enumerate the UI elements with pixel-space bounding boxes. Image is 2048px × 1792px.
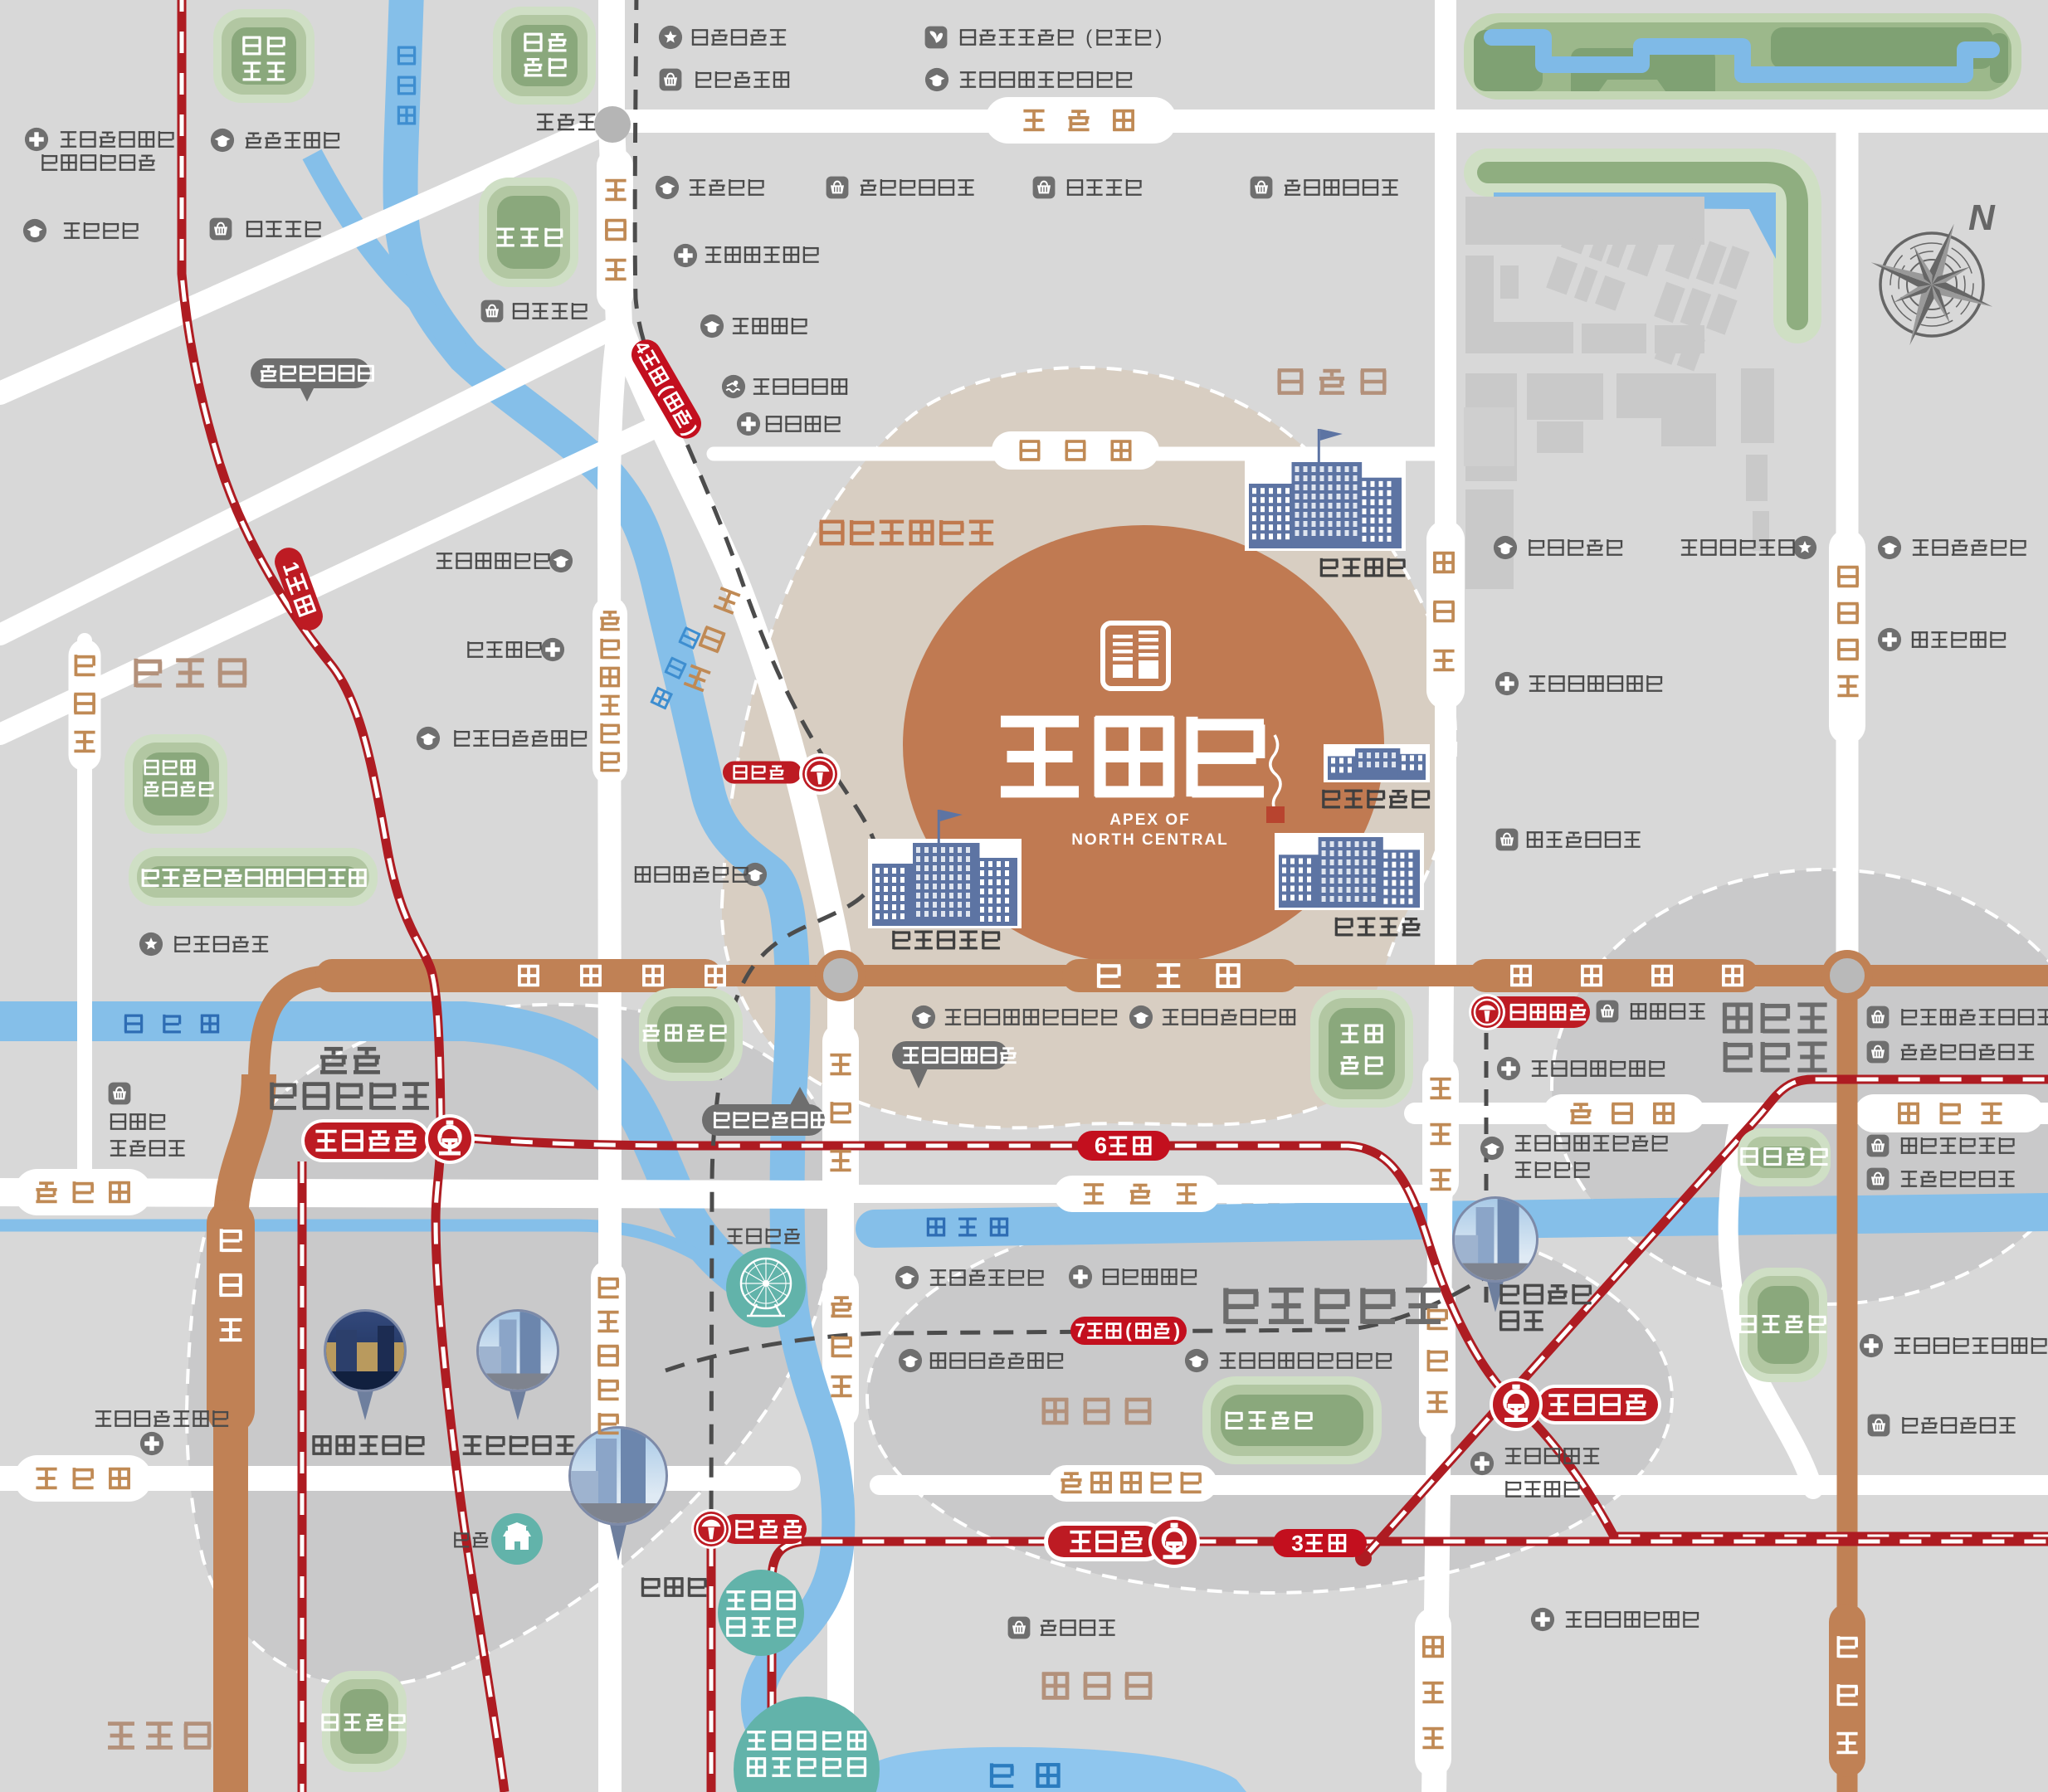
svg-text:(: ( (1125, 1320, 1132, 1342)
svg-text:3: 3 (1291, 1531, 1304, 1556)
svg-text:N: N (1968, 197, 1996, 238)
svg-text:NORTH CENTRAL: NORTH CENTRAL (1071, 831, 1229, 849)
svg-text:6: 6 (1095, 1132, 1107, 1158)
svg-text:7: 7 (1075, 1320, 1085, 1342)
svg-text:(: ( (1085, 27, 1092, 49)
svg-text:): ) (1173, 1320, 1180, 1342)
svg-text:): ) (1155, 27, 1162, 49)
svg-text:APEX OF: APEX OF (1109, 811, 1190, 829)
